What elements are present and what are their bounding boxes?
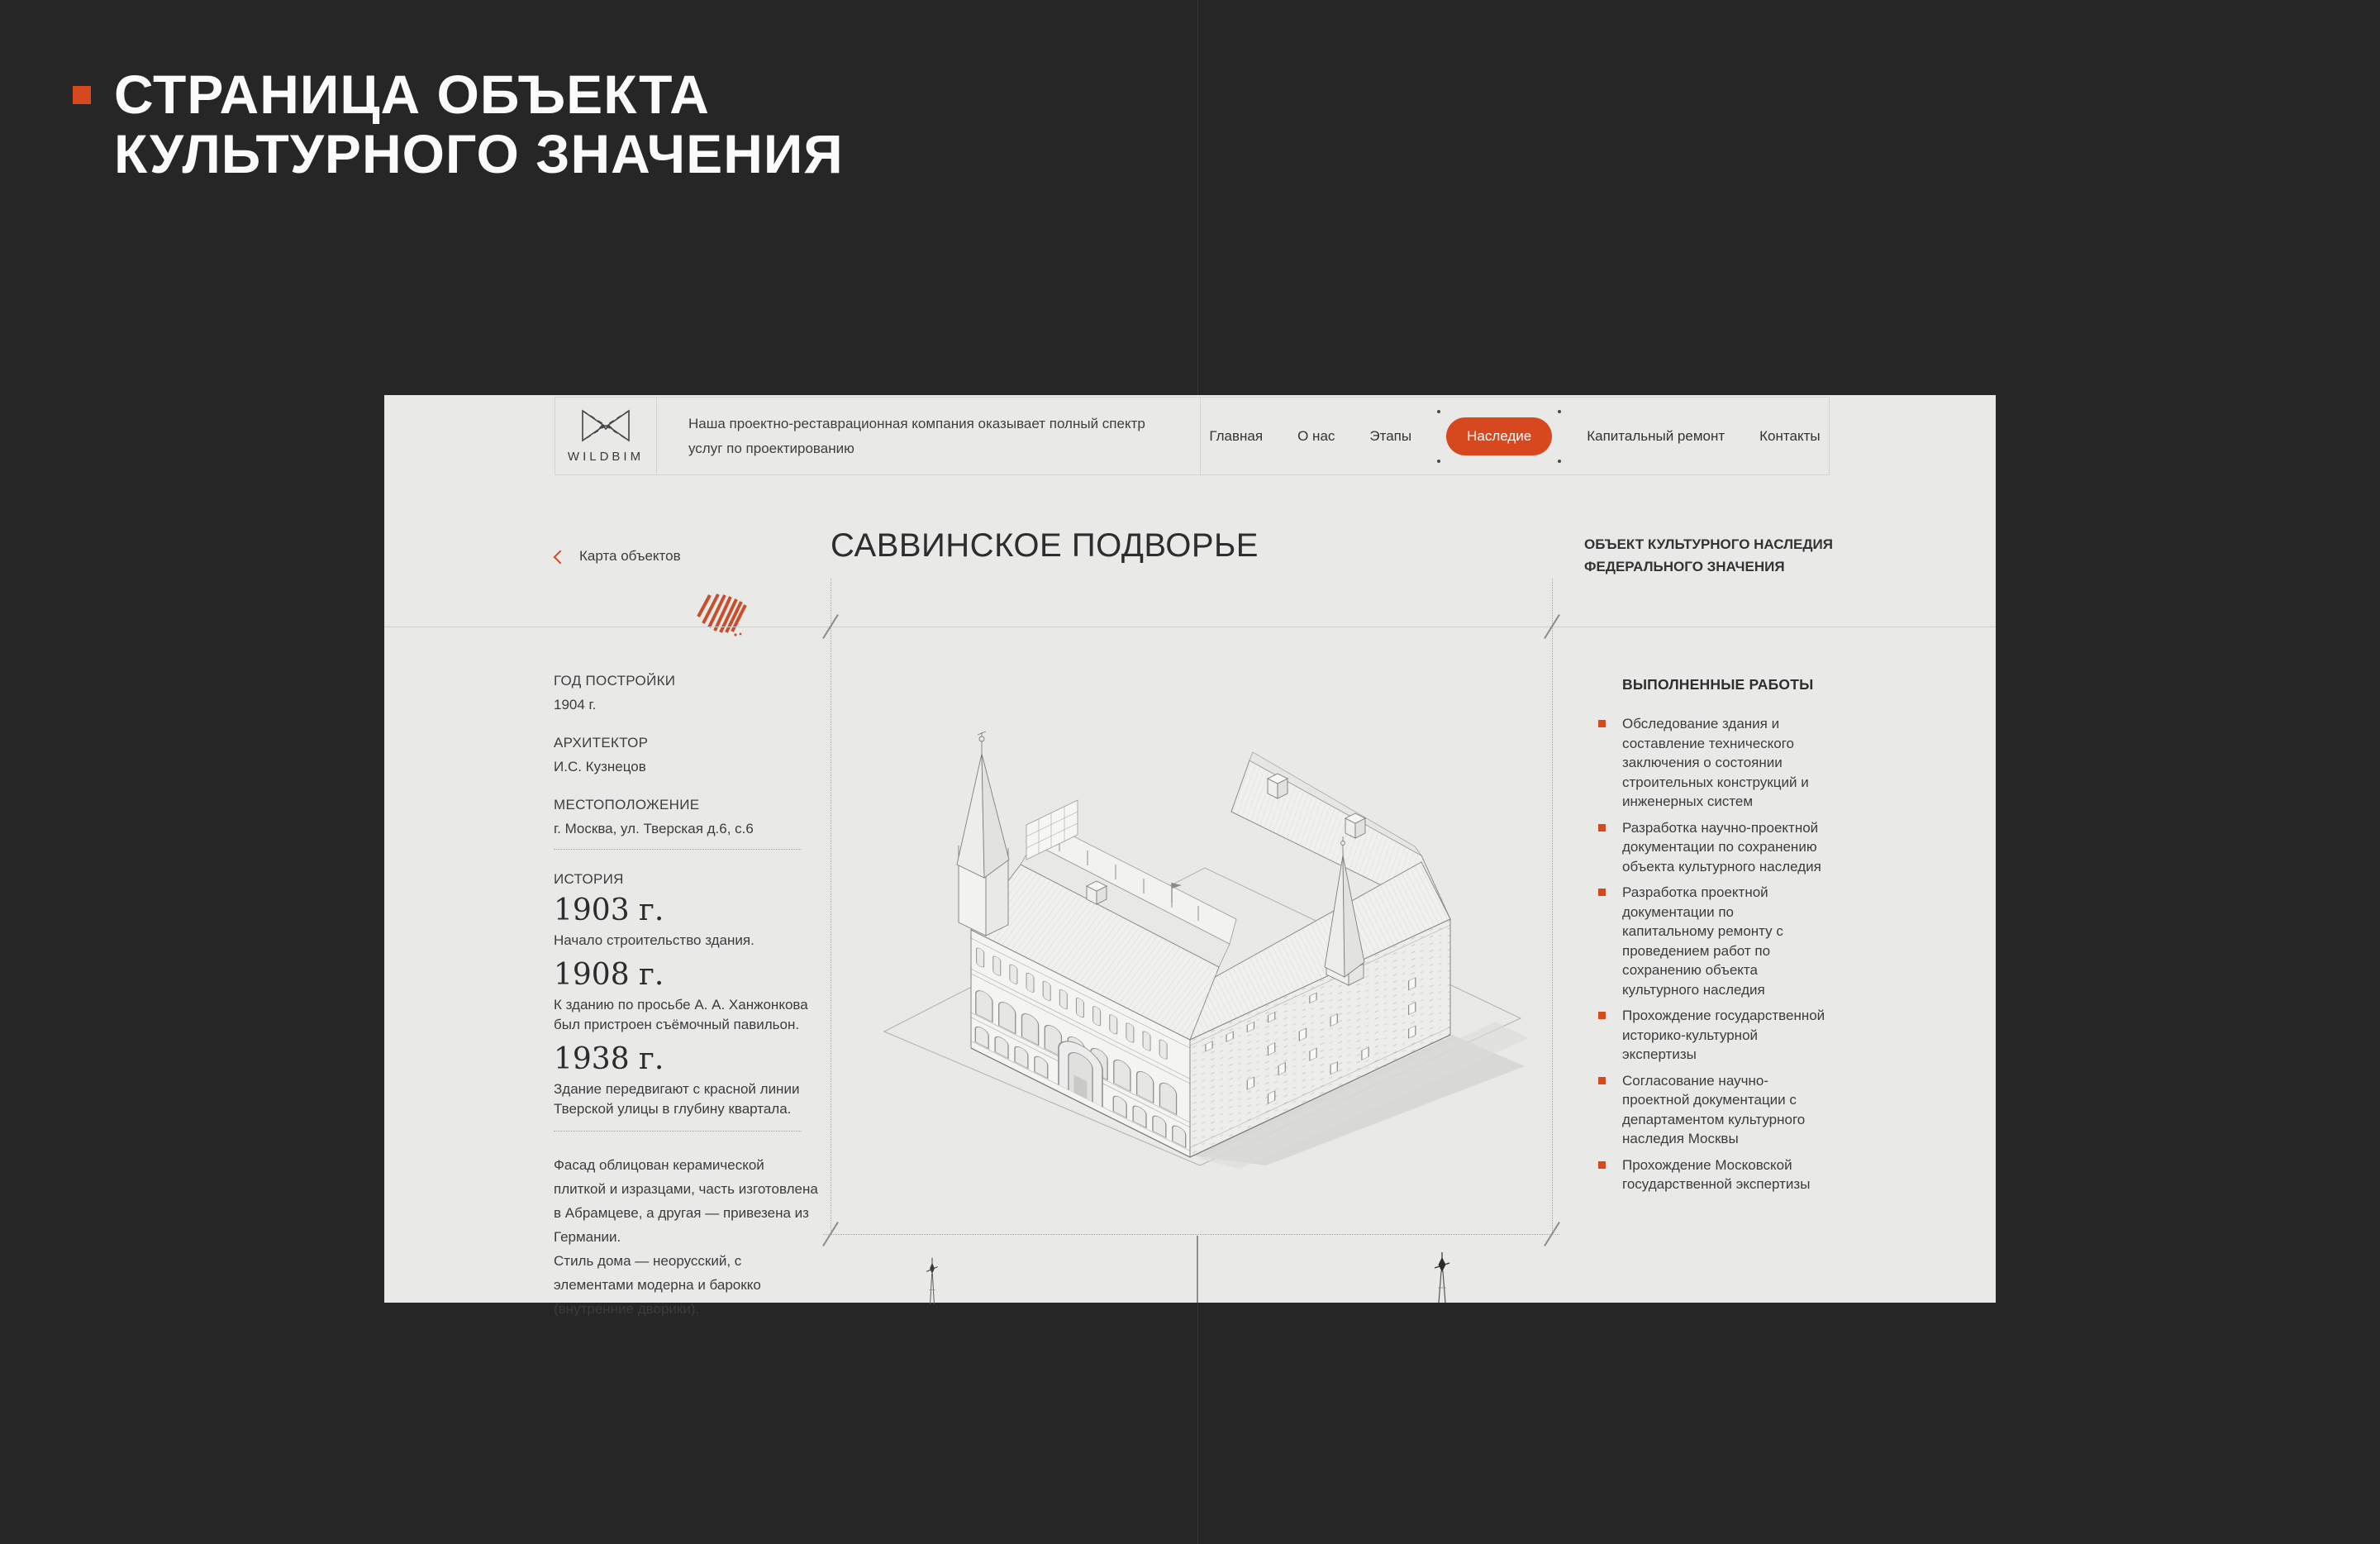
detail-year: ГОД ПОСТРОЙКИ 1904 г. [554,673,818,713]
logo-text: WILDBIM [568,450,644,464]
nav-item-nasledie-active[interactable]: Наследие [1446,417,1552,455]
slide-title: СТРАНИЦА ОБЪЕКТА КУЛЬТУРНОГО ЗНАЧЕНИЯ [114,64,844,183]
selection-handle [1437,460,1440,463]
works-item-text: Разработка проектной документации по кап… [1622,883,1829,999]
works-item: Обследование здания и составление технич… [1598,714,1838,812]
detail-label: ГОД ПОСТРОЙКИ [554,673,818,689]
detail-value: И.С. Кузнецов [554,759,818,775]
nav-item-kapremont[interactable]: Капитальный ремонт [1587,428,1725,445]
works-item-text: Прохождение государственной историко-кул… [1622,1006,1829,1065]
back-link-label: Карта объектов [579,548,681,565]
heritage-status-badge: ОБЪЕКТ КУЛЬТУРНОГО НАСЛЕДИЯ ФЕДЕРАЛЬНОГО… [1584,533,1840,578]
works-item-text: Прохождение Московской государственной э… [1622,1156,1829,1194]
small-spire-drawing [1427,1251,1457,1307]
drafting-guide-left [831,579,831,1234]
history-year: 1908 г. [554,959,826,992]
facade-note: Фасад облицован керамической плиткой и и… [554,1153,820,1321]
object-details: ГОД ПОСТРОЙКИ 1904 г. АРХИТЕКТОР И.С. Ку… [554,673,818,859]
detail-location: МЕСТОПОЛОЖЕНИЕ г. Москва, ул. Тверская д… [554,797,818,837]
title-bullet-square [73,86,91,104]
small-spire-drawing [918,1256,946,1308]
works-item: Прохождение государственной историко-кул… [1598,1006,1838,1065]
building-isometric-drawing [843,694,1570,1178]
bullet-square-icon [1598,1077,1606,1084]
history-event: 1903 г. Начало строительство здания. [554,894,826,951]
bullet-square-icon [1598,1012,1606,1019]
works-item-text: Обследование здания и составление технич… [1622,714,1829,812]
bullet-square-icon [1598,1161,1606,1169]
history-event: 1938 г. Здание передвигают с красной лин… [554,1043,826,1119]
detail-architect: АРХИТЕКТОР И.С. Кузнецов [554,735,818,775]
history-year: 1903 г. [554,894,826,927]
history-text: К зданию по просьбе А. А. Ханжонкова был… [554,995,826,1035]
history-heading: ИСТОРИЯ [554,871,624,888]
red-hatch-decoration [692,567,758,641]
footer-section-divider [1197,1236,1198,1303]
site-header: WILDBIM Наша проектно-реставрационная ко… [555,397,1830,475]
detail-label: МЕСТОПОЛОЖЕНИЕ [554,797,818,813]
history-year: 1938 г. [554,1043,826,1076]
back-to-map-link[interactable]: Карта объектов [555,548,681,565]
works-heading: ВЫПОЛНЕННЫЕ РАБОТЫ [1622,676,1813,693]
main-nav: Главная О нас Этапы Наследие Капитальный… [1201,398,1829,474]
horizontal-divider [384,627,1996,627]
history-text: Начало строительство здания. [554,931,826,951]
detail-value: 1904 г. [554,697,818,713]
works-item: Разработка проектной документации по кап… [1598,883,1838,999]
works-list: Обследование здания и составление технич… [1598,714,1838,1201]
history-timeline: 1903 г. Начало строительство здания. 190… [554,894,826,1127]
nav-item-o-nas[interactable]: О нас [1297,428,1335,445]
dotted-divider [554,1131,802,1132]
company-tagline: Наша проектно-реставрационная компания о… [657,398,1201,474]
bullet-square-icon [1598,889,1606,896]
works-item: Разработка научно-проектной документации… [1598,818,1838,877]
nav-item-etapy[interactable]: Этапы [1369,428,1411,445]
dotted-divider [554,849,802,850]
works-item: Согласование научно-проектной документац… [1598,1071,1838,1149]
works-item-text: Согласование научно-проектной документац… [1622,1071,1829,1149]
logo[interactable]: WILDBIM [555,398,657,474]
history-event: 1908 г. К зданию по просьбе А. А. Ханжон… [554,959,826,1035]
chevron-left-icon [554,550,568,564]
bullet-square-icon [1598,824,1606,832]
drafting-guide-bottom [823,1234,1559,1235]
logo-mark-icon [579,408,632,449]
bullet-square-icon [1598,720,1606,727]
nav-item-nasledie-label: Наследие [1467,428,1531,444]
detail-label: АРХИТЕКТОР [554,735,818,751]
history-text: Здание передвигают с красной линии Тверс… [554,1079,826,1119]
works-item-text: Разработка научно-проектной документации… [1622,818,1829,877]
selection-handle [1437,410,1440,413]
selection-handle [1558,460,1561,463]
page-title: САВВИНСКОЕ ПОДВОРЬЕ [831,527,1259,565]
works-item: Прохождение Московской государственной э… [1598,1156,1838,1194]
nav-item-glavnaya[interactable]: Главная [1209,428,1263,445]
nav-item-kontakty[interactable]: Контакты [1759,428,1820,445]
selection-handle [1558,410,1561,413]
detail-value: г. Москва, ул. Тверская д.6, с.6 [554,821,818,837]
slide-canvas: СТРАНИЦА ОБЪЕКТА КУЛЬТУРНОГО ЗНАЧЕНИЯ [0,0,2380,1544]
website-page: WILDBIM Наша проектно-реставрационная ко… [384,395,1996,1303]
